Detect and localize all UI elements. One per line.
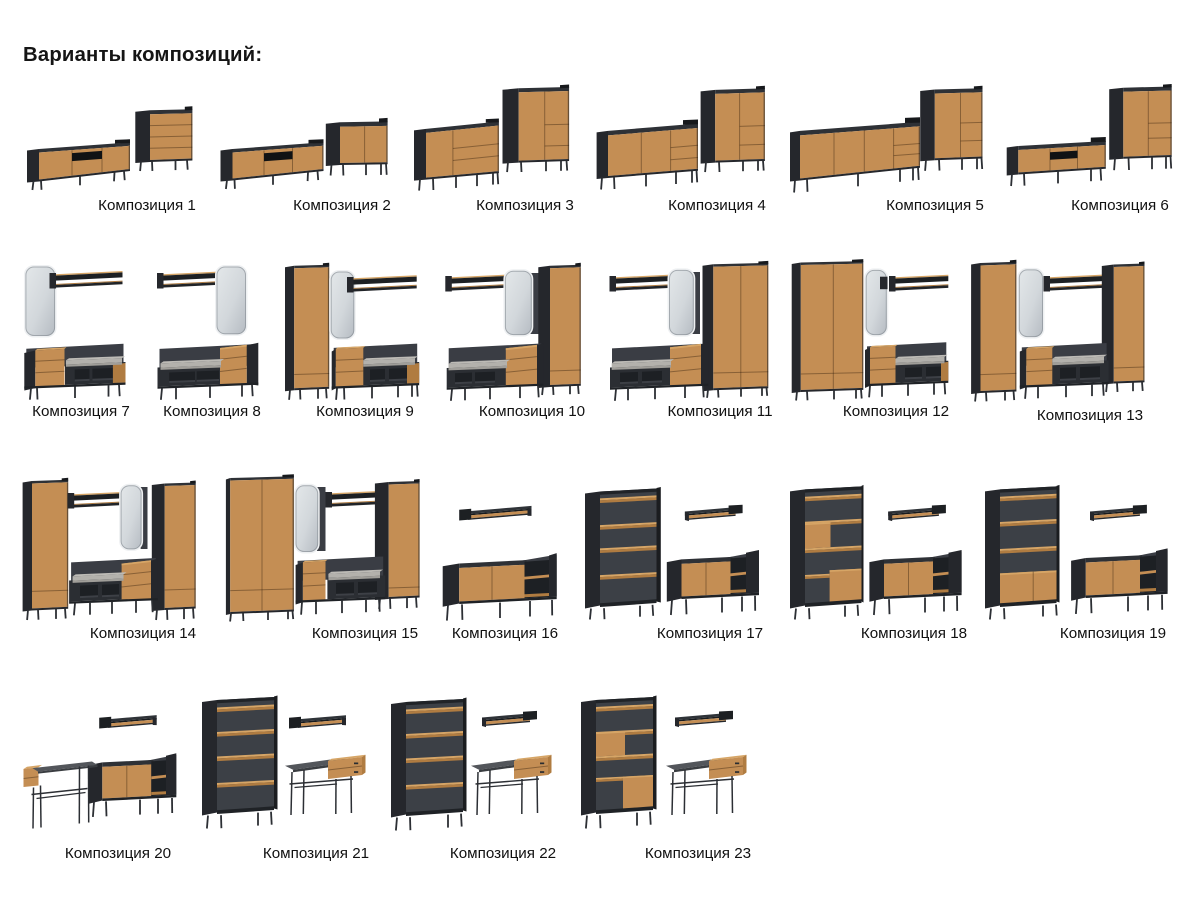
svg-text:Композиция 5: Композиция 5 [886,197,984,214]
svg-text:Композиция 9: Композиция 9 [316,403,414,420]
svg-text:Композиция 3: Композиция 3 [476,197,574,214]
svg-text:Композиция 20: Композиция 20 [65,845,171,862]
svg-text:Композиция 10: Композиция 10 [479,403,585,420]
svg-text:Композиция 19: Композиция 19 [1060,625,1166,642]
svg-text:Композиция 6: Композиция 6 [1071,197,1169,214]
svg-text:Композиция 13: Композиция 13 [1037,407,1143,424]
svg-text:Композиция 8: Композиция 8 [163,403,261,420]
svg-text:Композиция 12: Композиция 12 [843,403,949,420]
svg-text:Композиция 17: Композиция 17 [657,625,763,642]
svg-text:Композиция 2: Композиция 2 [293,197,391,214]
svg-text:Композиция 22: Композиция 22 [450,845,556,862]
svg-text:Варианты композиций:: Варианты композиций: [23,44,262,66]
svg-text:Композиция 1: Композиция 1 [98,197,196,214]
svg-text:Композиция 23: Композиция 23 [645,845,751,862]
svg-text:Композиция 7: Композиция 7 [32,403,130,420]
svg-text:Композиция 16: Композиция 16 [452,625,558,642]
svg-text:Композиция 18: Композиция 18 [861,625,967,642]
svg-text:Композиция 21: Композиция 21 [263,845,369,862]
svg-text:Композиция 4: Композиция 4 [668,197,766,214]
svg-text:Композиция 14: Композиция 14 [90,625,196,642]
svg-text:Композиция 15: Композиция 15 [312,625,418,642]
svg-text:Композиция 11: Композиция 11 [667,403,772,420]
